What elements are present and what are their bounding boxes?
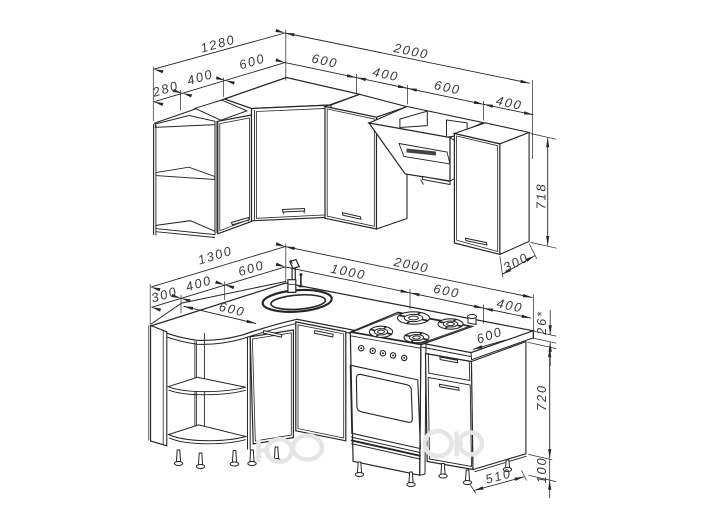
svg-text:26*: 26* <box>534 310 549 336</box>
svg-text:720: 720 <box>534 384 549 411</box>
svg-text:100: 100 <box>534 457 549 484</box>
svg-text:718: 718 <box>534 183 549 210</box>
